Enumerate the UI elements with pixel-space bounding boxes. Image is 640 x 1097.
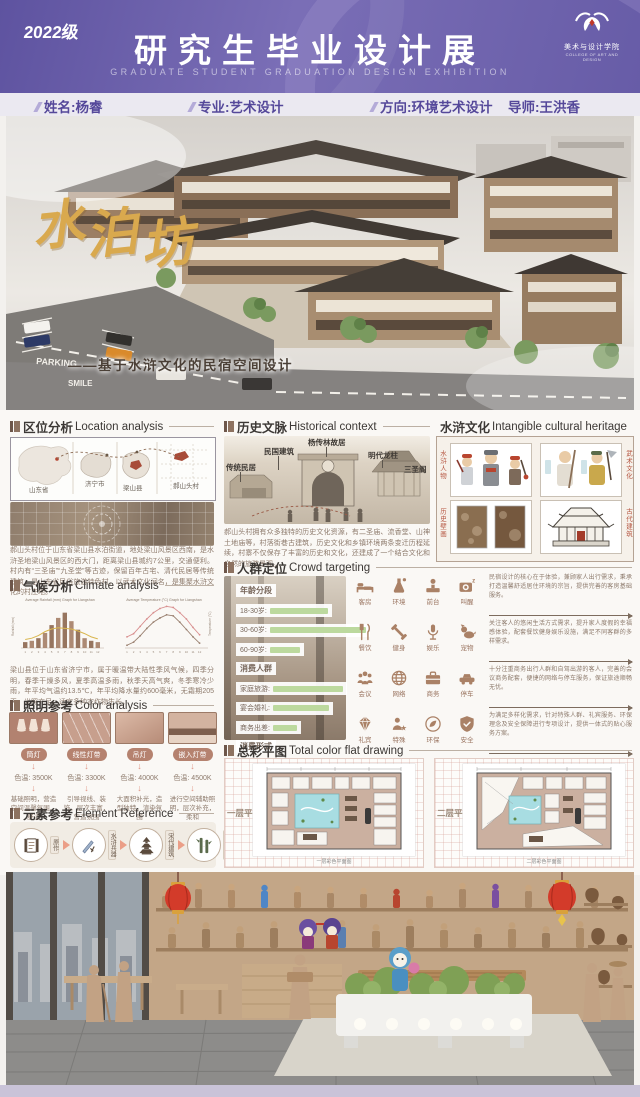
slash-decoration <box>187 102 196 112</box>
element-step-label: 原作 <box>50 836 59 854</box>
flow-arrow <box>489 615 632 616</box>
location-maps-svg: 山东省 济宁市 梁山县 郝山头村 <box>11 438 213 498</box>
college-logo-subtext: COLLEGE OF ART AND DESIGN <box>560 52 624 62</box>
arrow-down-icon: ↓ <box>137 784 142 794</box>
slash-decoration <box>369 102 378 112</box>
crowd-bar-label: 18-30岁: <box>240 606 267 616</box>
dining-icon: 餐饮 <box>348 620 382 663</box>
element-reference-flow: 原作 水浒兵器 宋代建筑 植物元素 <box>10 822 216 868</box>
crowd-bar <box>270 608 328 614</box>
exhibition-subtitle-en: GRADUATE STUDENT GRADUATION DESIGN EXHIB… <box>105 67 515 77</box>
color-temperature: 色温: 3500K <box>14 773 52 783</box>
crowd-bar-label: 60-90岁: <box>240 645 267 655</box>
section-header-history: 历史文脉 Historical context <box>224 419 430 434</box>
satellite-image <box>10 502 214 546</box>
crowd-bar <box>270 647 300 653</box>
network-icon: 网络 <box>382 666 416 709</box>
student-info-bar: 姓名:杨睿 专业:艺术设计 方向:环境艺术设计 导师:王洪香 <box>0 93 640 116</box>
crowd-group-title: 消费人群 <box>236 662 276 675</box>
heritage-side-label: 古代建筑 <box>624 508 631 538</box>
svg-text:Temperature (°C): Temperature (°C) <box>208 612 212 636</box>
history-label-folk-house: 传统民居 <box>226 462 256 473</box>
floorplan-first-floor: 一层平面 一层彩色平面图 <box>224 758 424 868</box>
lighting-swatch-downlight <box>9 712 58 744</box>
svg-text:Average Rainfall (mm) Graph fo: Average Rainfall (mm) Graph for Liangsha… <box>25 598 94 602</box>
flow-arrow <box>489 707 632 708</box>
lighting-label: 线性灯带 <box>67 748 107 761</box>
road-text-smile: SMILE <box>68 379 93 388</box>
heritage-side-label: 历史壁画 <box>438 508 445 538</box>
svg-text:7: 7 <box>64 650 66 654</box>
interior-render <box>6 872 634 1085</box>
lighting-label: 筒灯 <box>21 748 47 761</box>
services-grid: 客房 环境 前台 z 叫醒 民宿设计的核心在于体验，兼顾家人出行需求，秉承打造温… <box>348 574 632 758</box>
service-row: 客房 环境 前台 z 叫醒 民宿设计的核心在于体验，兼顾家人出行需求，秉承打造温… <box>348 574 632 617</box>
color-temperature: 色温: 3300K <box>67 773 105 783</box>
fitness-icon: 健身 <box>382 620 416 663</box>
svg-text:9: 9 <box>77 650 79 654</box>
label-pin <box>240 472 241 482</box>
svg-text:4: 4 <box>146 650 148 654</box>
crowd-bar <box>273 705 329 711</box>
hero-aerial-render: PARKING SMILE 水 泊 坊 ——基于水浒文化的民宿空间设计 <box>6 116 634 410</box>
section-header-lighting: 照明参考 Color analysis <box>10 698 214 713</box>
college-logo: 美术与设计学院 COLLEGE OF ART AND DESIGN <box>560 9 624 62</box>
svg-text:8: 8 <box>172 650 174 654</box>
temperature-chart: Average Temperature (°C) Graph for Liang… <box>114 594 214 664</box>
svg-text:12: 12 <box>198 650 202 654</box>
section-header-heritage: 水浒文化 Intangible cultural heritage <box>436 419 632 434</box>
svg-text:1: 1 <box>24 650 26 654</box>
svg-text:10: 10 <box>83 650 87 654</box>
svg-text:9: 9 <box>179 650 181 654</box>
svg-text:5: 5 <box>153 650 155 654</box>
svg-text:4: 4 <box>44 650 46 654</box>
class-year-badge: 2022级 <box>23 18 80 43</box>
crowd-bar-label: 商务出差: <box>240 723 270 733</box>
student-advisor: 导师:王洪香 <box>508 96 580 116</box>
heritage-panel-murals <box>450 500 532 554</box>
poster: 2022级 研究生毕业设计展 GRADUATE STUDENT GRADUATI… <box>0 0 640 1097</box>
lighting-label: 嵌入灯带 <box>173 748 213 761</box>
crowd-bar <box>273 725 297 731</box>
svg-text:Rainfall (mm): Rainfall (mm) <box>11 617 15 636</box>
bed-icon: 客房 <box>348 574 382 617</box>
pagoda-icon <box>129 828 163 862</box>
svg-text:1: 1 <box>126 650 128 654</box>
location-maps: 山东省 济宁市 梁山县 郝山头村 <box>10 437 216 501</box>
map-label-village: 郝山头村 <box>173 481 200 490</box>
pet-icon: 宠物 <box>450 620 484 663</box>
arrow-right-icon <box>178 840 185 850</box>
svg-text:11: 11 <box>90 650 93 654</box>
sword-icon <box>72 828 106 862</box>
map-label-shandong: 山东省 <box>29 485 49 494</box>
heritage-panel-characters <box>450 443 532 497</box>
wakeup-icon: z 叫醒 <box>450 574 484 617</box>
student-direction: 方向:环境艺术设计 <box>372 96 493 116</box>
color-temperature: 色温: 4500K <box>173 773 211 783</box>
parking-icon: 停车 <box>450 666 484 709</box>
label-pin <box>382 460 383 468</box>
section-header-elements: 元素参考 Element Reference <box>10 806 214 821</box>
svg-text:12: 12 <box>96 650 100 654</box>
bamboo-icon <box>187 828 221 862</box>
element-step-label: 水浒兵器 <box>108 830 117 860</box>
heritage-side-label: 武术文化 <box>624 450 631 480</box>
flow-arrow <box>489 661 632 662</box>
service-description: 民宿设计的核心在于体验，兼顾家人出行需求，秉承打造温馨舒适居住环境的宗旨，提供完… <box>484 574 632 617</box>
floorplan-caption: 二层彩色平面图 <box>463 858 625 865</box>
business-icon: 商务 <box>416 666 450 709</box>
svg-text:2: 2 <box>133 650 135 654</box>
svg-text:★: ★ <box>400 723 407 732</box>
svg-text:3: 3 <box>38 650 40 654</box>
project-subtitle: ——基于水浒文化的民宿空间设计 <box>68 354 293 374</box>
bottom-border-strip <box>0 1085 640 1097</box>
svg-text:6: 6 <box>57 650 59 654</box>
heritage-panel-heroes <box>540 443 622 497</box>
arrow-down-icon: ↓ <box>137 762 142 772</box>
crowd-bar-label: 宴会婚礼: <box>240 703 270 713</box>
element-step-label: 宋代建筑 <box>165 830 174 860</box>
heritage-side-label: 水浒人物 <box>438 450 445 480</box>
history-label-sansheng-pavilion: 三圣阁 <box>404 464 427 475</box>
floorplan-sheet <box>253 764 415 856</box>
arrow-down-icon: ↓ <box>190 762 195 772</box>
heritage-panel-temple <box>540 500 622 554</box>
college-logo-icon <box>572 9 612 36</box>
interior-scene <box>6 872 634 1085</box>
environment-icon: 环境 <box>382 574 416 617</box>
student-major: 专业:艺术设计 <box>190 96 284 116</box>
svg-text:11: 11 <box>191 650 194 654</box>
arrow-down-icon: ↓ <box>31 784 36 794</box>
rainfall-chart: Average Rainfall (mm) Graph for Liangsha… <box>10 594 110 664</box>
arrow-down-icon: ↓ <box>84 784 89 794</box>
lighting-swatch-strip <box>62 712 111 744</box>
arrow-down-icon: ↓ <box>31 762 36 772</box>
exhibition-title: 研究生毕业设计展 <box>105 24 515 72</box>
label-pin <box>326 447 327 457</box>
svg-text:2: 2 <box>31 650 33 654</box>
lighting-swatch-pendant <box>115 712 164 744</box>
crowd-bar-label: 家庭旅游: <box>240 684 270 694</box>
map-label-jining: 济宁市 <box>85 479 105 488</box>
college-logo-text: 美术与设计学院 <box>560 42 624 52</box>
svg-text:3: 3 <box>139 650 141 654</box>
crowd-group-title: 年龄分段 <box>236 584 276 597</box>
floorplan-caption: 一层彩色平面图 <box>253 858 415 865</box>
label-pin <box>278 456 279 470</box>
arrow-right-icon <box>63 840 70 850</box>
svg-text:6: 6 <box>159 650 161 654</box>
map-label-liangshan: 梁山县 <box>123 483 143 492</box>
svg-text:8: 8 <box>71 650 73 654</box>
floorplan-sheet <box>463 764 625 856</box>
slash-decoration <box>33 102 42 112</box>
crowd-bar <box>273 686 343 692</box>
arrow-down-icon: ↓ <box>190 784 195 794</box>
section-header-location: 区位分析 Location analysis <box>10 419 214 434</box>
history-collage: 传统民居 民国建筑 杨传林故居 明代龙柱 三圣阁 <box>224 436 430 524</box>
meeting-icon: 会议 <box>348 666 382 709</box>
section-header-climate: 气候分析 Climate analysis <box>10 578 214 593</box>
climate-charts: Average Rainfall (mm) Graph for Liangsha… <box>10 594 214 664</box>
service-row: 餐饮 健身 娱乐 宠物 关注客人的悠闲生活方式需求，提升家人度假的幸福感体验，配… <box>348 620 632 663</box>
svg-text:7: 7 <box>166 650 168 654</box>
service-description: 关注客人的悠闲生活方式需求，提升家人度假的幸福感体验，配套餐饮健身娱乐设施，满足… <box>484 620 632 663</box>
svg-text:Average Temperature (°C) Graph: Average Temperature (°C) Graph for Liang… <box>126 598 202 602</box>
color-temperature: 色温: 4000K <box>120 773 158 783</box>
svg-text:10: 10 <box>185 650 189 654</box>
student-name: 姓名:杨睿 <box>36 96 103 116</box>
entertainment-icon: 娱乐 <box>416 620 450 663</box>
history-label-ming-pillar: 明代龙柱 <box>368 450 398 461</box>
arrow-right-icon <box>120 840 127 850</box>
history-label-republic-building: 民国建筑 <box>264 446 294 457</box>
section-header-floorplan: 总彩平图 Total color flat drawing <box>224 743 632 758</box>
lighting-label: 吊灯 <box>127 748 153 761</box>
scroll-icon <box>14 828 48 862</box>
service-description: 十分注重商务出行人群和自驾出游的客人，完善的会议商务配套，便捷的网络与停车服务，… <box>484 666 632 709</box>
service-row: 会议 网络 商务 停车 十分注重商务出行人群和自驾出游的客人，完善的会议商务配套… <box>348 666 632 709</box>
header-banner: 2022级 研究生毕业设计展 GRADUATE STUDENT GRADUATI… <box>0 0 640 93</box>
crowd-bar-label: 30-60岁: <box>240 625 267 635</box>
section-header-crowd: 人群定位 Crowd targeting <box>224 560 632 575</box>
arrow-down-icon: ↓ <box>84 762 89 772</box>
floorplan-second-floor: 二层平面 二层彩色平面图 <box>434 758 634 868</box>
lighting-swatch-recessed <box>168 712 217 744</box>
reception-icon: 前台 <box>416 574 450 617</box>
svg-text:5: 5 <box>51 650 53 654</box>
svg-text:z: z <box>472 577 475 584</box>
